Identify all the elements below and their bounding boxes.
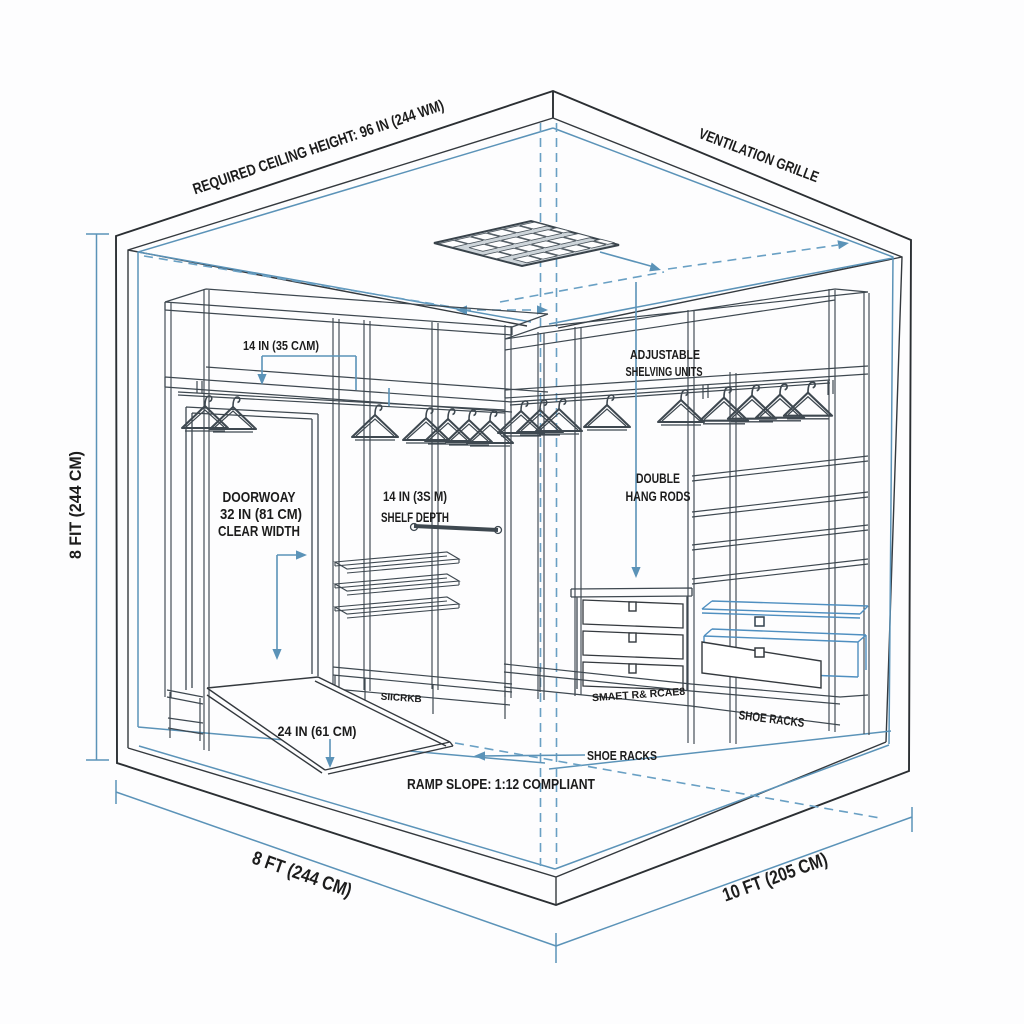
svg-text:ADJUSTABLE: ADJUSTABLE xyxy=(630,347,700,362)
svg-text:RAMP SLOPE: 1:12 COMPLIANT: RAMP SLOPE: 1:12 COMPLIANT xyxy=(407,777,595,793)
svg-text:HANG RODS: HANG RODS xyxy=(626,489,691,504)
svg-text:SHELF DEPTH: SHELF DEPTH xyxy=(381,510,449,525)
svg-text:24 IN (61 CM): 24 IN (61 CM) xyxy=(278,724,357,739)
svg-text:8 FIT (244 CM): 8 FIT (244 CM) xyxy=(66,451,85,559)
svg-text:DOORWOAY: DOORWOAY xyxy=(223,489,296,506)
svg-text:DOUBLE: DOUBLE xyxy=(636,471,680,486)
svg-text:14 IN (35 CΛM): 14 IN (35 CΛM) xyxy=(243,338,319,353)
svg-text:14 IN (3S M): 14 IN (3S M) xyxy=(383,489,447,504)
svg-text:CLEAR WIDTH: CLEAR WIDTH xyxy=(218,523,300,540)
svg-text:32 IN (81 CM): 32 IN (81 CM) xyxy=(220,506,302,523)
svg-text:SHOE RACKS: SHOE RACKS xyxy=(587,749,657,763)
svg-text:SHELVING UNITS: SHELVING UNITS xyxy=(626,364,703,379)
